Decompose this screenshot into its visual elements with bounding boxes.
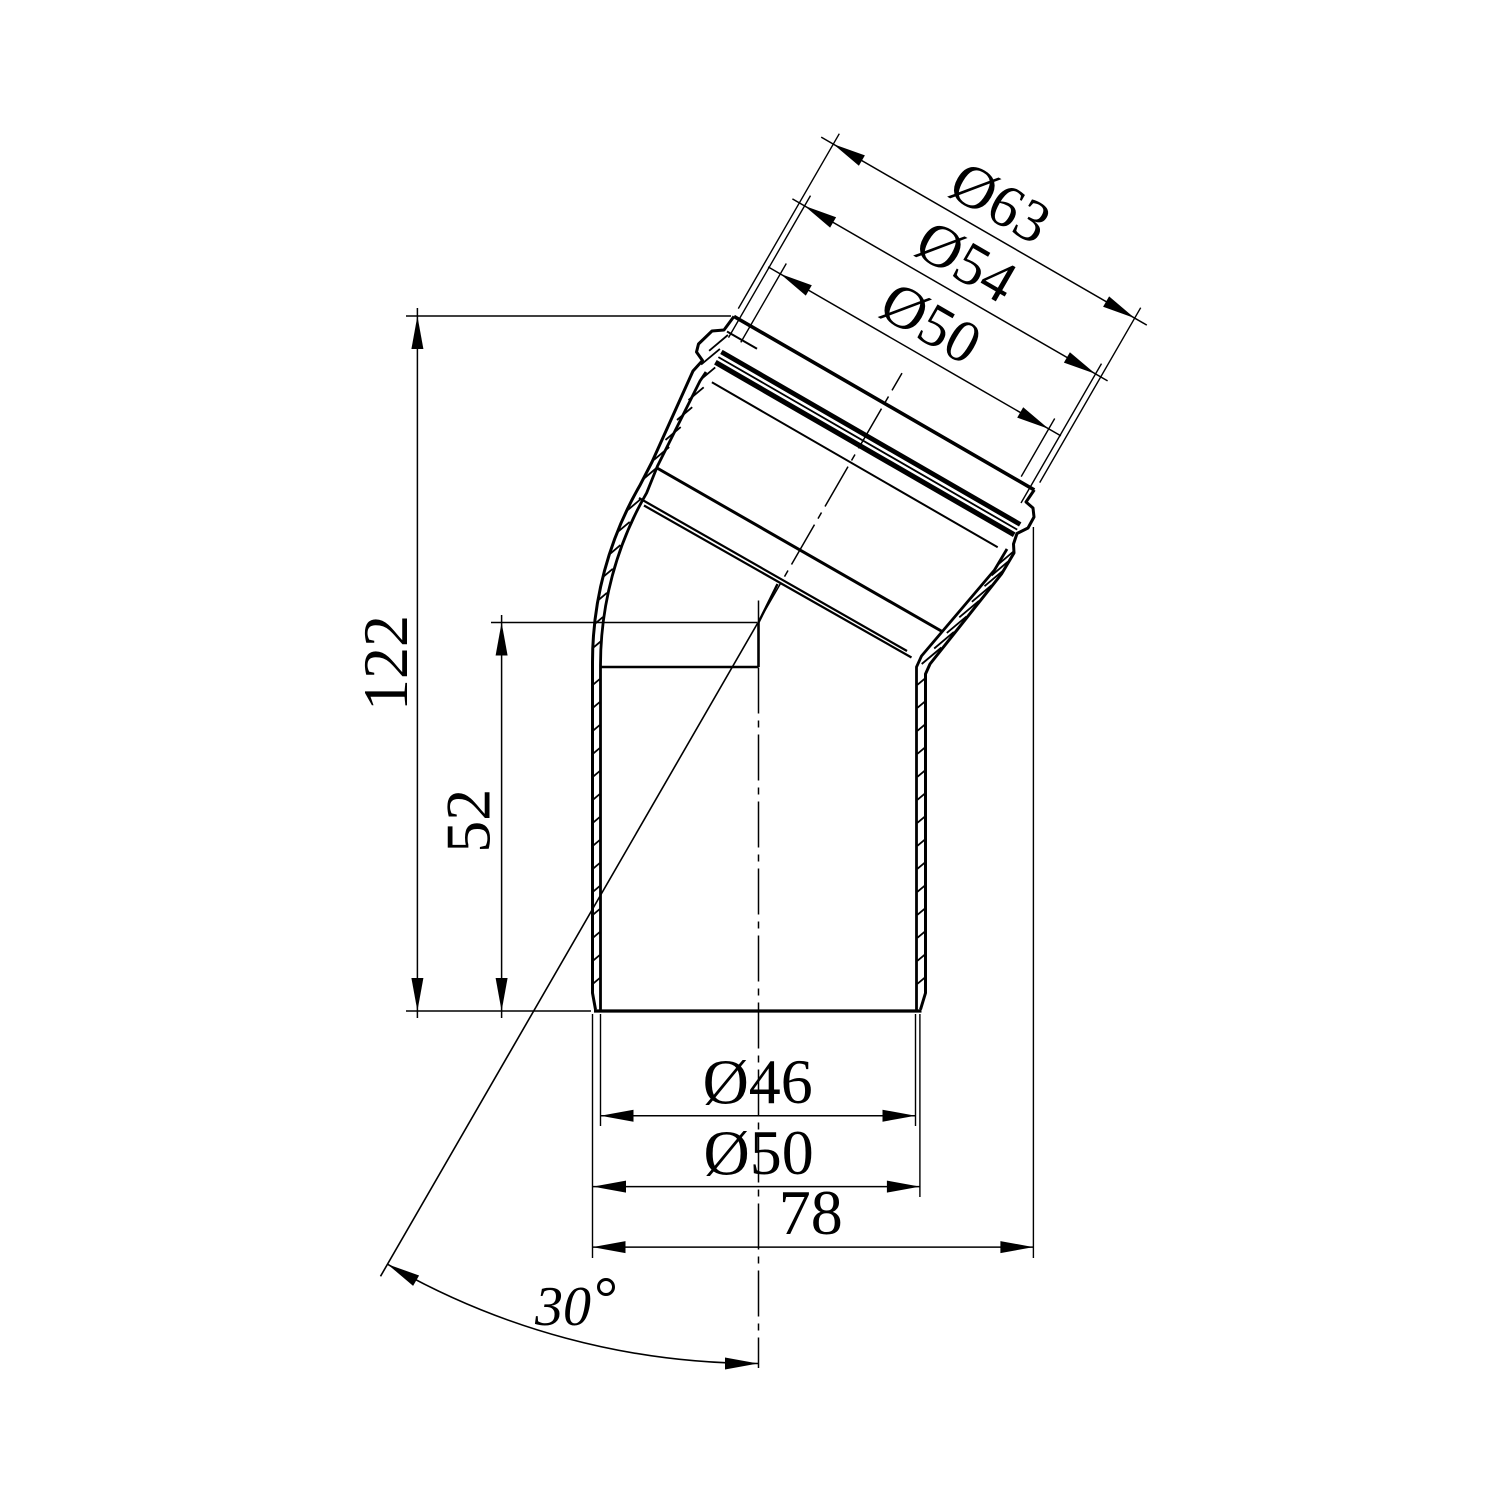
svg-text:Ø46: Ø46: [703, 1046, 813, 1117]
svg-text:52: 52: [432, 789, 503, 853]
svg-text:122: 122: [350, 615, 421, 711]
svg-text:78: 78: [779, 1177, 843, 1248]
svg-text:30: 30: [534, 1276, 591, 1338]
